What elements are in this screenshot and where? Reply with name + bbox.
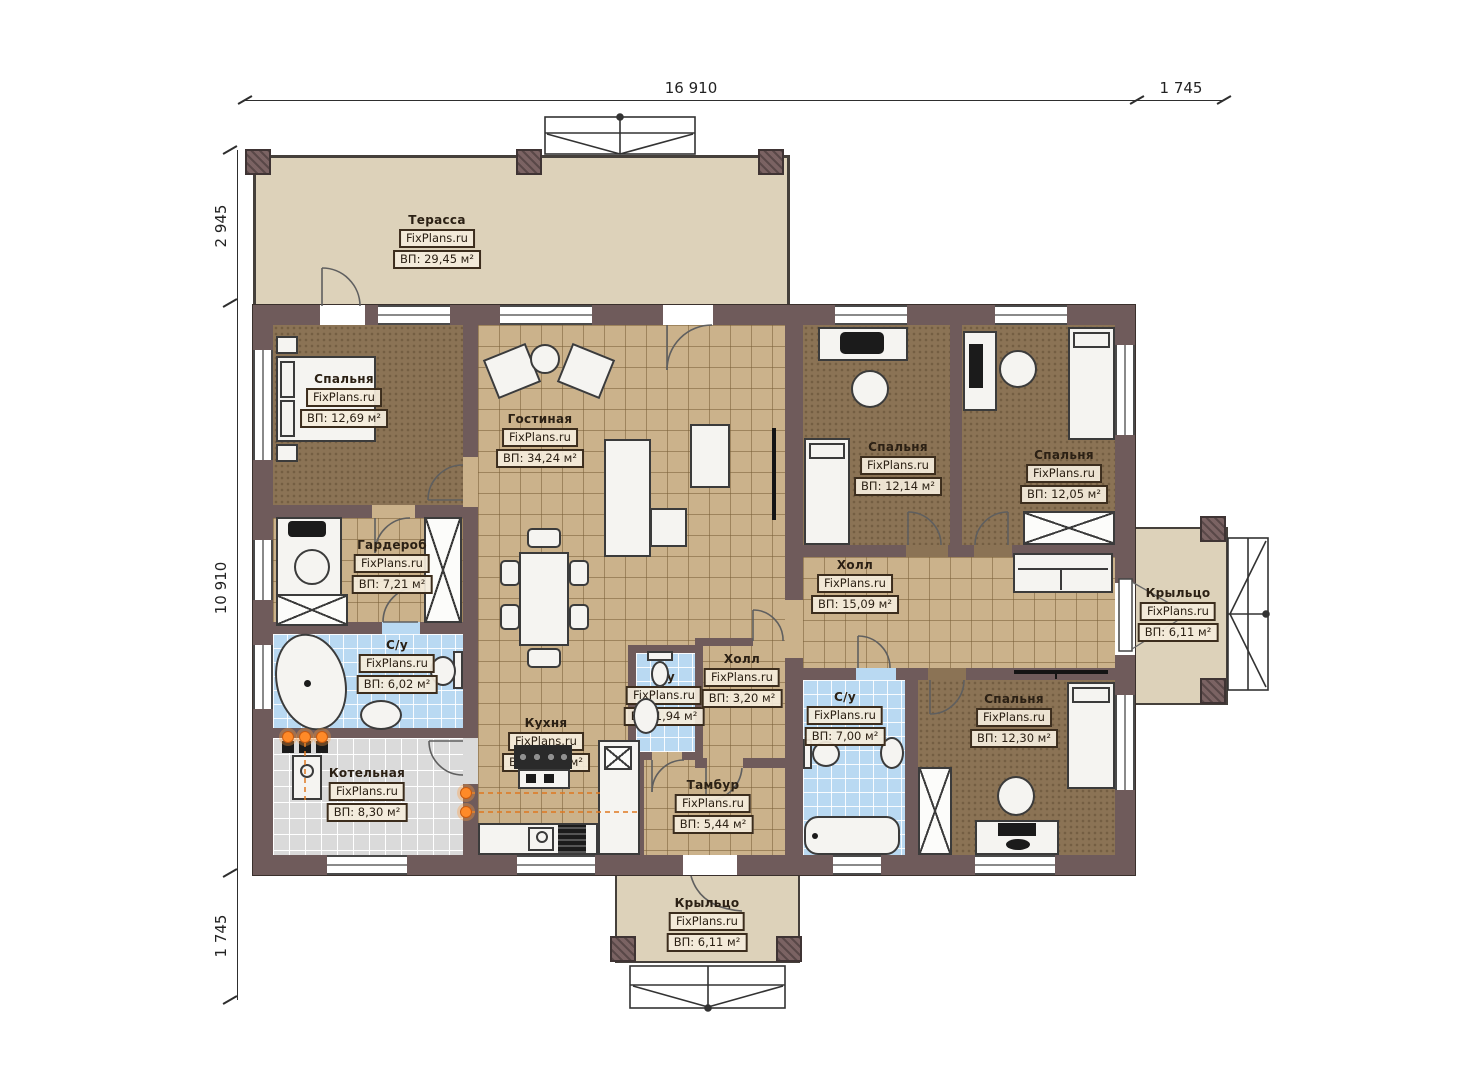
- window: [975, 855, 1055, 875]
- pillow: [280, 400, 295, 437]
- room-label-living: Гостиная FixPlans.ru ВП: 34,24 м²: [496, 412, 584, 468]
- dining-chair: [500, 560, 520, 586]
- heating-manifold: [282, 741, 294, 753]
- room-name: С/у: [386, 638, 408, 652]
- room-name: Тамбур: [687, 778, 740, 792]
- room-area: ВП: 12,14 м²: [854, 477, 942, 496]
- stove: [558, 825, 586, 853]
- pillow: [280, 361, 295, 398]
- room-label-bath2: С/у FixPlans.ru ВП: 7,00 м²: [805, 690, 886, 746]
- dining-chair: [500, 604, 520, 630]
- dim-tick: [223, 298, 238, 308]
- computer: [840, 332, 884, 354]
- window: [1115, 695, 1135, 790]
- dining-table: [519, 552, 569, 646]
- room-brand: FixPlans.ru: [675, 794, 751, 813]
- room-brand: FixPlans.ru: [399, 229, 475, 248]
- window: [327, 855, 407, 875]
- room-brand: FixPlans.ru: [1140, 602, 1216, 621]
- terrace-deck: [253, 155, 790, 305]
- room-area: ВП: 12,69 м²: [300, 409, 388, 428]
- room-label-bath1: С/у FixPlans.ru ВП: 6,02 м²: [357, 638, 438, 694]
- porch-post: [610, 936, 636, 962]
- pillow: [809, 443, 845, 459]
- room-area: ВП: 12,30 м²: [970, 729, 1058, 748]
- wall-hall-small: [743, 758, 803, 768]
- entry-door-hall: [1115, 583, 1135, 655]
- dining-chair: [569, 560, 589, 586]
- room-label-bedroom1: Спальня FixPlans.ru ВП: 12,69 м²: [300, 372, 388, 428]
- room-label-tambur: Тамбур FixPlans.ru ВП: 5,44 м²: [673, 778, 754, 834]
- chair: [851, 370, 889, 408]
- room-brand: FixPlans.ru: [669, 912, 745, 931]
- wardrobe-cabinet: [1023, 511, 1115, 545]
- wall-hall-small: [695, 758, 707, 768]
- window: [500, 305, 592, 325]
- room-name: Гардероб: [357, 538, 427, 552]
- room-label-bedroom2: Спальня FixPlans.ru ВП: 12,14 м²: [854, 440, 942, 496]
- room-area: ВП: 6,11 м²: [1138, 623, 1219, 642]
- room-area: ВП: 29,45 м²: [393, 250, 481, 269]
- door-opening: [928, 668, 966, 680]
- monitor: [998, 823, 1036, 836]
- porch-post: [1200, 678, 1226, 704]
- chair: [294, 549, 330, 585]
- terrace-post: [758, 149, 784, 175]
- room-label-wardrobe: Гардероб FixPlans.ru ВП: 7,21 м²: [352, 538, 433, 594]
- window: [378, 305, 450, 325]
- bench-line: [1060, 570, 1062, 590]
- room-area: ВП: 34,24 м²: [496, 449, 584, 468]
- terrace-post: [516, 149, 542, 175]
- room-name: Котельная: [329, 766, 405, 780]
- heating-manifold: [316, 741, 328, 753]
- room-brand: FixPlans.ru: [860, 456, 936, 475]
- bathtub-drain: [812, 833, 818, 839]
- room-label-porch-bottom: Крыльцо FixPlans.ru ВП: 6,11 м²: [667, 896, 748, 952]
- steps-bottom: [630, 966, 785, 1011]
- room-name: Гостиная: [508, 412, 573, 426]
- room-label-bedroom3: Спальня FixPlans.ru ВП: 12,05 м²: [1020, 448, 1108, 504]
- room-area: ВП: 7,21 м²: [352, 575, 433, 594]
- printer: [288, 521, 326, 537]
- monitor: [969, 344, 983, 388]
- room-brand: FixPlans.ru: [807, 706, 883, 725]
- room-name: С/у: [834, 690, 856, 704]
- dim-tick: [223, 868, 238, 878]
- steps-right: [1228, 538, 1269, 690]
- pillow: [1072, 687, 1110, 703]
- room-area: ВП: 6,02 м²: [357, 675, 438, 694]
- dining-chair: [527, 528, 561, 548]
- porch-post: [776, 936, 802, 962]
- appliance-knob: [544, 774, 554, 783]
- room-name: Холл: [724, 652, 760, 666]
- steps-top: [545, 114, 695, 154]
- pillow: [1073, 332, 1110, 348]
- room-brand: FixPlans.ru: [354, 554, 430, 573]
- passage-opening: [785, 600, 803, 658]
- room-brand: FixPlans.ru: [329, 782, 405, 801]
- room-label-boiler: Котельная FixPlans.ru ВП: 8,30 м²: [327, 766, 408, 822]
- room-brand: FixPlans.ru: [1026, 464, 1102, 483]
- room-label-hall-small: Холл FixPlans.ru ВП: 3,20 м²: [702, 652, 783, 708]
- sofa: [604, 439, 651, 557]
- window: [995, 305, 1067, 325]
- terrace-post: [245, 149, 271, 175]
- nightstand: [276, 336, 298, 354]
- wall-hall-small-top: [695, 638, 753, 646]
- dimension-line-left: [237, 150, 238, 1000]
- window: [835, 305, 907, 325]
- room-brand: FixPlans.ru: [306, 388, 382, 407]
- sofa-chaise: [650, 508, 687, 547]
- room-name: Крыльцо: [675, 896, 740, 910]
- room-area: ВП: 7,00 м²: [805, 727, 886, 746]
- terrace-door-living: [663, 305, 713, 325]
- dim-label-top-porch: 1 745: [1160, 79, 1203, 97]
- counter-x-mark: [604, 746, 632, 770]
- room-area: ВП: 3,20 м²: [702, 689, 783, 708]
- window: [253, 645, 273, 709]
- room-name: Терасса: [408, 213, 465, 227]
- window: [253, 350, 273, 460]
- dim-label-left-main: 10 910: [212, 562, 230, 615]
- dim-tick: [223, 995, 238, 1005]
- door-opening: [463, 457, 478, 507]
- room-label-bedroom4: Спальня FixPlans.ru ВП: 12,30 м²: [970, 692, 1058, 748]
- room-area: ВП: 5,44 м²: [673, 815, 754, 834]
- keyboard: [1006, 839, 1030, 850]
- room-area: ВП: 15,09 м²: [811, 595, 899, 614]
- hall-bench: [1013, 553, 1113, 593]
- room-brand: FixPlans.ru: [976, 708, 1052, 727]
- dim-label-left-porch: 1 745: [212, 915, 230, 958]
- room-name: Холл: [837, 558, 873, 572]
- dimension-line-top: [245, 100, 1224, 101]
- dim-tick: [223, 145, 238, 155]
- room-area: ВП: 12,05 м²: [1020, 485, 1108, 504]
- dining-chair: [527, 648, 561, 668]
- room-label-hall: Холл FixPlans.ru ВП: 15,09 м²: [811, 558, 899, 614]
- heating-manifold: [299, 741, 311, 753]
- side-table: [530, 344, 560, 374]
- door-opening: [974, 545, 1012, 557]
- room-brand: FixPlans.ru: [704, 668, 780, 687]
- cooktop: [514, 745, 572, 769]
- bathtub: [804, 816, 900, 855]
- room-label-terrace: Терасса FixPlans.ru ВП: 29,45 м²: [393, 213, 481, 269]
- room-name: Крыльцо: [1146, 586, 1211, 600]
- dim-label-top-main: 16 910: [665, 79, 718, 97]
- terrace-door-bedroom1: [320, 305, 365, 325]
- coffee-table: [690, 424, 730, 488]
- window: [833, 855, 881, 875]
- bench-line: [1018, 568, 1108, 570]
- window: [1115, 345, 1135, 435]
- toilet: [651, 661, 669, 687]
- chair: [997, 776, 1035, 816]
- room-area: ВП: 8,30 м²: [327, 803, 408, 822]
- door-opening: [382, 622, 420, 634]
- chair: [999, 350, 1037, 388]
- door-opening: [372, 505, 415, 518]
- dining-chair: [569, 604, 589, 630]
- door-opening: [906, 545, 948, 557]
- room-name: Спальня: [314, 372, 374, 386]
- sink-drain: [536, 831, 548, 843]
- toilet: [633, 698, 659, 734]
- sink: [360, 700, 402, 730]
- door-opening: [463, 738, 478, 784]
- boiler-dial: [300, 764, 314, 778]
- room-area: ВП: 6,11 м²: [667, 933, 748, 952]
- cabinet: [276, 594, 348, 626]
- nightstand: [276, 444, 298, 462]
- entry-door-tambur: [683, 855, 737, 875]
- room-name: Спальня: [868, 440, 928, 454]
- room-brand: FixPlans.ru: [359, 654, 435, 673]
- dim-label-left-terrace: 2 945: [212, 205, 230, 248]
- room-name: Спальня: [984, 692, 1044, 706]
- wardrobe-cabinet: [918, 767, 952, 855]
- room-name: Спальня: [1034, 448, 1094, 462]
- room-brand: FixPlans.ru: [817, 574, 893, 593]
- window: [517, 855, 595, 875]
- room-name: Кухня: [525, 716, 568, 730]
- floor-plan-canvas: 16 910 1 745 2 945 10 910 1 745: [0, 0, 1473, 1080]
- bathtub-drain: [304, 680, 311, 687]
- porch-post: [1200, 516, 1226, 542]
- room-brand: FixPlans.ru: [502, 428, 578, 447]
- appliance-knob: [526, 774, 536, 783]
- window: [253, 540, 273, 600]
- toilet-tank: [647, 651, 673, 661]
- room-label-porch-right: Крыльцо FixPlans.ru ВП: 6,11 м²: [1138, 586, 1219, 642]
- door-opening: [856, 668, 896, 680]
